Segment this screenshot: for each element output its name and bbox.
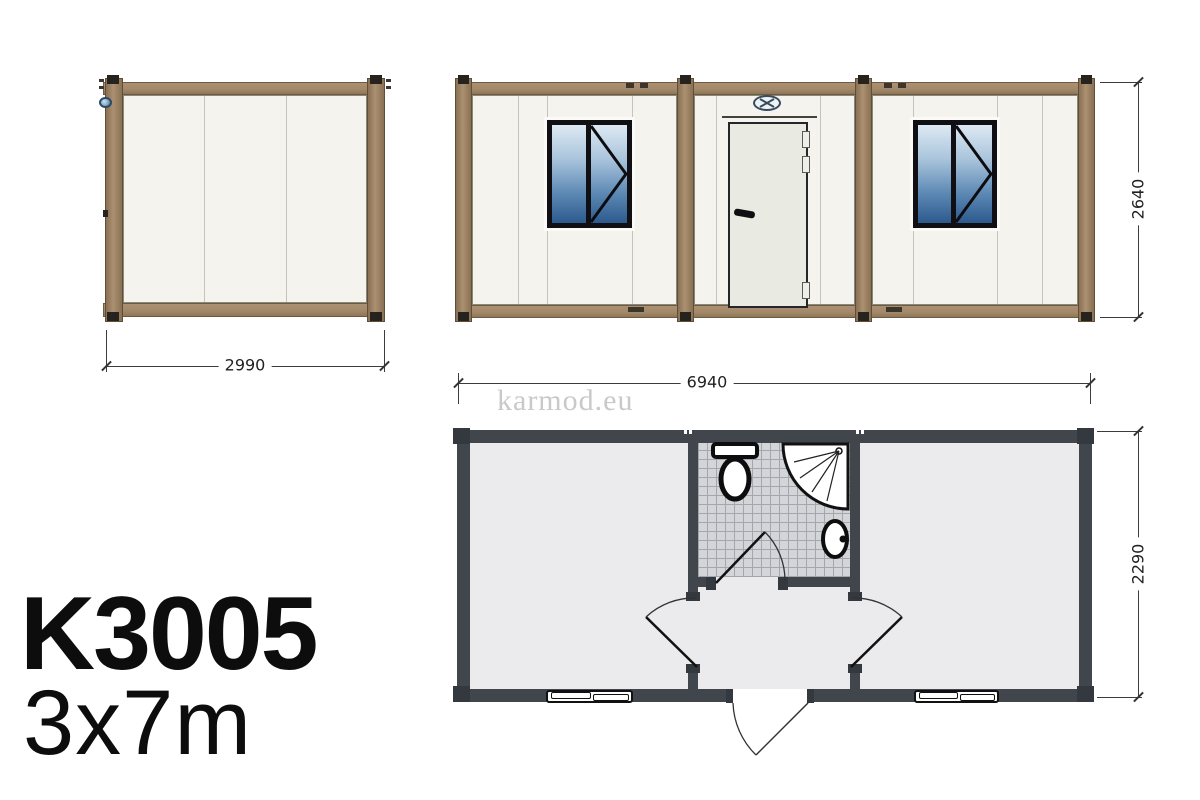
model-size-label: 3x7m bbox=[23, 682, 252, 765]
door-frame-head bbox=[722, 116, 817, 118]
vent-cross-icon bbox=[755, 97, 779, 109]
model-number-label: K3005 bbox=[20, 588, 316, 682]
side-top-rail bbox=[103, 82, 382, 95]
casting-notch bbox=[386, 86, 391, 89]
front-post bbox=[677, 78, 694, 322]
corner-casting bbox=[107, 312, 119, 321]
window-fixed-pane bbox=[918, 125, 951, 223]
brand-watermark: karmod.eu bbox=[497, 384, 633, 418]
window-fixed-pane bbox=[552, 125, 586, 223]
corner-casting bbox=[858, 75, 869, 84]
panel-seam bbox=[716, 96, 717, 304]
corner-casting bbox=[680, 312, 691, 321]
dimension-value: 2290 bbox=[1129, 538, 1148, 591]
casement-opening-icon bbox=[591, 125, 627, 223]
right-room-door-swing bbox=[851, 598, 902, 667]
front-post bbox=[455, 78, 472, 322]
shower-icon bbox=[783, 444, 848, 509]
panel-seam bbox=[1042, 96, 1043, 304]
rail-connector bbox=[884, 83, 892, 88]
casting-notch bbox=[99, 79, 104, 82]
side-corner-post-left bbox=[105, 78, 123, 322]
corner-casting bbox=[370, 75, 382, 84]
corner-casting bbox=[858, 312, 869, 321]
casement-opening-icon bbox=[956, 125, 992, 223]
left-room-door-swing bbox=[646, 598, 697, 667]
rail-connector bbox=[640, 83, 648, 88]
rail-connector bbox=[626, 83, 634, 88]
casting-notch bbox=[99, 86, 104, 89]
dimension-value: 2990 bbox=[219, 356, 272, 375]
window-1 bbox=[544, 117, 635, 231]
plan-fixtures-layer bbox=[450, 420, 1150, 790]
dimension-value: 6940 bbox=[681, 373, 734, 392]
corner-casting bbox=[458, 75, 469, 84]
front-post bbox=[1078, 78, 1095, 322]
window-casement-pane bbox=[956, 125, 992, 223]
door-hinge bbox=[802, 156, 810, 173]
side-wall-panel bbox=[123, 95, 367, 303]
post-latch bbox=[103, 210, 108, 217]
sink-icon bbox=[823, 521, 847, 557]
casting-notch bbox=[386, 79, 391, 82]
extension-line bbox=[1090, 373, 1091, 404]
vent-icon bbox=[753, 95, 781, 111]
side-panel-seam bbox=[286, 96, 287, 302]
window-2 bbox=[910, 117, 1000, 231]
corner-casting bbox=[107, 75, 119, 84]
bathroom-door-swing bbox=[716, 532, 785, 583]
side-panel-seam bbox=[204, 96, 205, 302]
window-frame bbox=[547, 120, 632, 228]
dimension-value: 2640 bbox=[1129, 173, 1148, 226]
corner-casting bbox=[1081, 312, 1092, 321]
entrance-door-swing bbox=[733, 703, 808, 755]
corner-casting bbox=[458, 312, 469, 321]
window-frame bbox=[913, 120, 997, 228]
window-casement-pane bbox=[591, 125, 627, 223]
front-top-rail bbox=[457, 82, 1093, 95]
door-hinge bbox=[802, 282, 810, 299]
door-hinge bbox=[802, 131, 810, 148]
corner-casting bbox=[370, 312, 382, 321]
drain-hook-icon bbox=[99, 97, 112, 108]
front-post bbox=[855, 78, 872, 322]
panel-seam bbox=[518, 96, 519, 304]
side-corner-post-right bbox=[367, 78, 385, 322]
toilet-icon bbox=[713, 444, 757, 499]
panel-seam bbox=[820, 96, 821, 304]
rail-connector bbox=[898, 83, 906, 88]
corner-casting bbox=[680, 75, 691, 84]
extension-line bbox=[458, 373, 459, 404]
side-bottom-rail bbox=[103, 303, 382, 317]
corner-casting bbox=[1081, 75, 1092, 84]
product-drawing-sheet: 2990 bbox=[0, 0, 1200, 800]
rail-connector bbox=[886, 307, 902, 312]
rail-connector bbox=[628, 307, 644, 312]
